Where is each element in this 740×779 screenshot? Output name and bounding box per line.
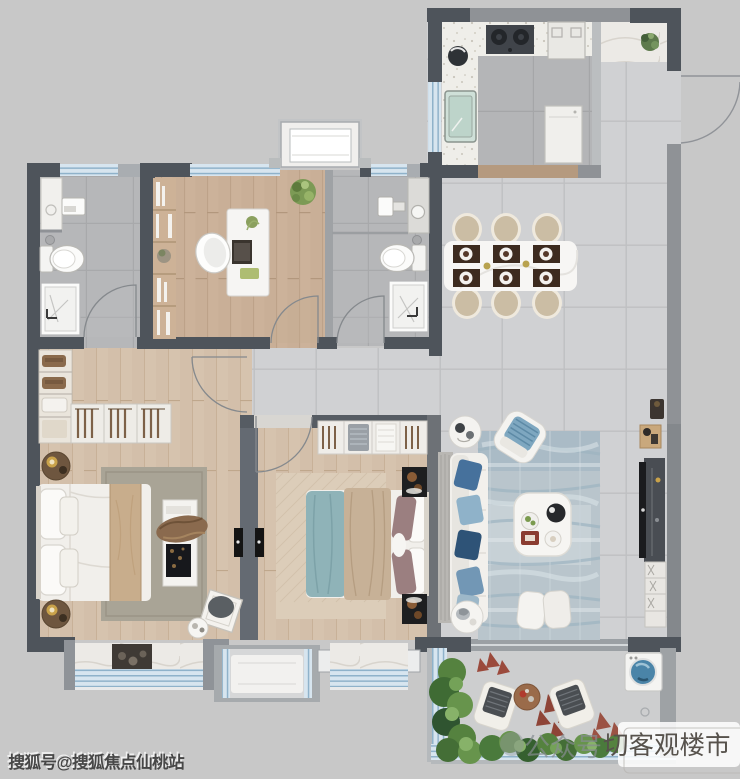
svg-text:切客观楼市: 切客观楼市 <box>603 732 731 760</box>
svg-text:搜狐号@搜狐焦点仙桃站: 搜狐号@搜狐焦点仙桃站 <box>9 752 186 772</box>
svg-text:公众号: 公众号 <box>524 732 602 762</box>
